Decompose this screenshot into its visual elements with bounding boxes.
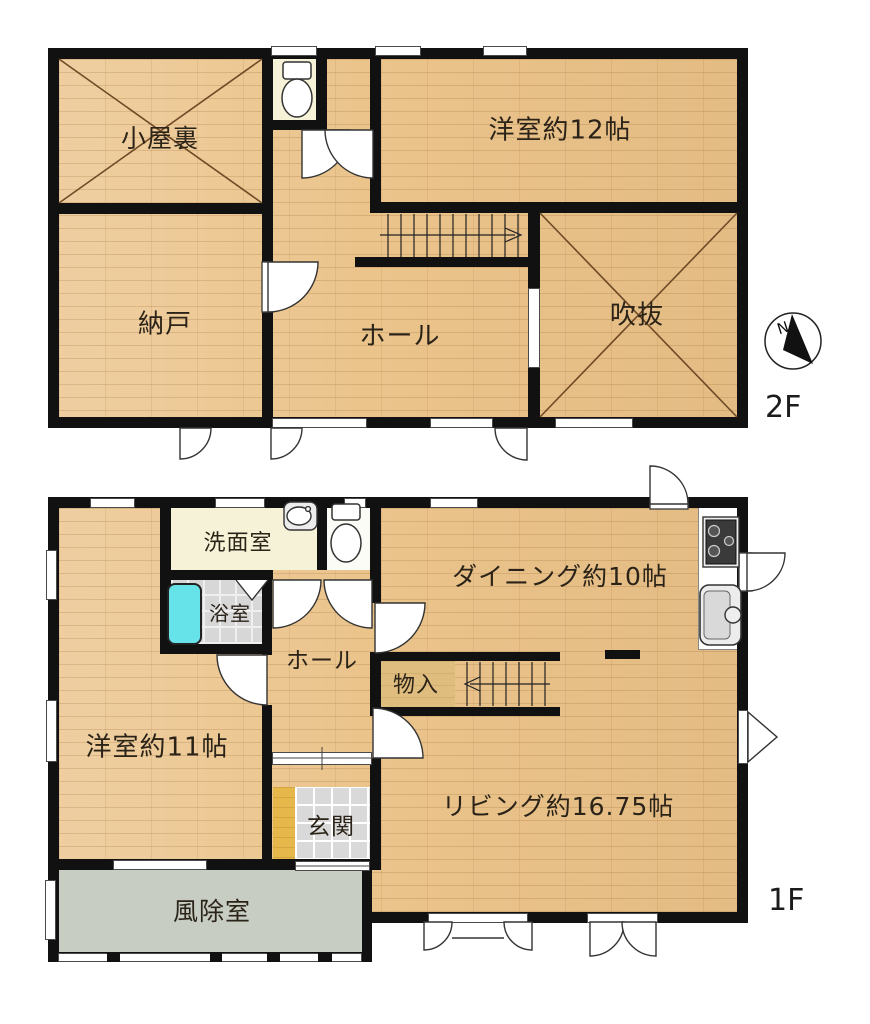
window bbox=[375, 46, 421, 56]
wall bbox=[262, 705, 272, 865]
wall bbox=[262, 120, 327, 130]
window bbox=[738, 710, 748, 764]
floorplan-page: { "labels": { "f2": { "attic": "小屋裏", "y… bbox=[0, 0, 870, 1024]
wall bbox=[370, 48, 381, 202]
wall bbox=[370, 758, 381, 870]
wall bbox=[370, 912, 748, 923]
wall bbox=[48, 497, 748, 508]
window bbox=[430, 498, 478, 508]
room-label-yoshitsu12: 洋室約12帖 bbox=[488, 110, 631, 147]
room-label-bath: 浴室 bbox=[209, 598, 251, 627]
window bbox=[483, 46, 527, 56]
room-label-yoshitsu11: 洋室約11帖 bbox=[85, 727, 228, 764]
room-wc1-floor bbox=[327, 508, 370, 570]
wall bbox=[737, 48, 748, 428]
wall bbox=[316, 48, 327, 130]
wall bbox=[48, 203, 270, 214]
wall bbox=[160, 644, 272, 654]
room-label-dining: ダイニング約10帖 bbox=[452, 557, 668, 593]
window bbox=[90, 498, 135, 508]
window bbox=[430, 418, 493, 428]
interior-window-void bbox=[528, 288, 540, 368]
window bbox=[113, 860, 207, 870]
room-label-hall2f: ホール bbox=[359, 316, 440, 353]
window bbox=[215, 498, 265, 508]
wall bbox=[317, 497, 327, 570]
room-label-attic: 小屋裏 bbox=[121, 119, 199, 155]
entry-sliding-door bbox=[272, 752, 372, 765]
window bbox=[46, 550, 57, 600]
room-label-senmen: 洗面室 bbox=[203, 525, 272, 557]
window bbox=[344, 498, 366, 508]
window bbox=[428, 913, 528, 923]
entry-sliding-door bbox=[295, 861, 370, 871]
compass-north-label: N bbox=[775, 318, 791, 339]
wall bbox=[262, 48, 273, 428]
window-mullion bbox=[210, 953, 222, 962]
wall bbox=[160, 570, 273, 580]
wall bbox=[362, 860, 372, 962]
window bbox=[272, 418, 367, 428]
room-wc2-floor bbox=[273, 59, 316, 120]
wall bbox=[48, 417, 748, 428]
floor2-base-wood bbox=[59, 59, 737, 417]
window bbox=[46, 700, 57, 762]
wall bbox=[355, 257, 540, 267]
floor-tag-1f: 1F bbox=[768, 883, 804, 918]
entry-step-strip bbox=[273, 787, 295, 860]
window bbox=[587, 913, 658, 923]
window bbox=[45, 880, 56, 940]
room-label-genkan: 玄関 bbox=[307, 807, 355, 841]
room-label-monoire: 物入 bbox=[393, 667, 439, 699]
wall bbox=[370, 652, 560, 661]
wall bbox=[370, 655, 381, 708]
window-mullion bbox=[318, 953, 332, 962]
window bbox=[555, 418, 633, 428]
wall bbox=[370, 202, 748, 213]
wall bbox=[370, 707, 560, 716]
room-label-hall1f: ホール bbox=[286, 641, 358, 675]
window bbox=[271, 46, 317, 56]
wall bbox=[48, 48, 59, 428]
room-label-fujoshitsu: 風除室 bbox=[173, 892, 251, 928]
window-mullion bbox=[267, 953, 280, 962]
wall bbox=[370, 497, 381, 603]
room-label-fukinuke: 吹抜 bbox=[610, 295, 664, 332]
room-label-nando: 納戸 bbox=[138, 304, 192, 341]
compass-icon: N bbox=[765, 313, 821, 369]
kitchen-counter bbox=[698, 505, 742, 650]
wall bbox=[605, 650, 640, 659]
room-label-living: リビング約16.75帖 bbox=[442, 787, 675, 823]
window-mullion bbox=[107, 953, 120, 962]
floor-tag-2f: 2F bbox=[765, 390, 801, 425]
